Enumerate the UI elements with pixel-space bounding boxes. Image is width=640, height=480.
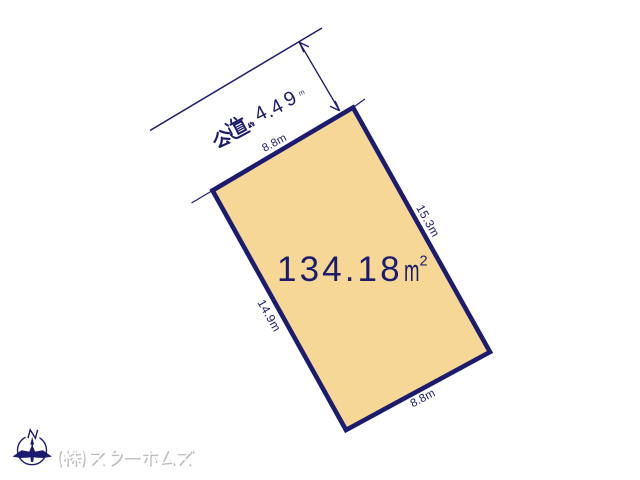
svg-text:134.18: 134.18 [277,250,403,289]
svg-text:2: 2 [420,254,428,270]
svg-text:m: m [404,254,419,288]
